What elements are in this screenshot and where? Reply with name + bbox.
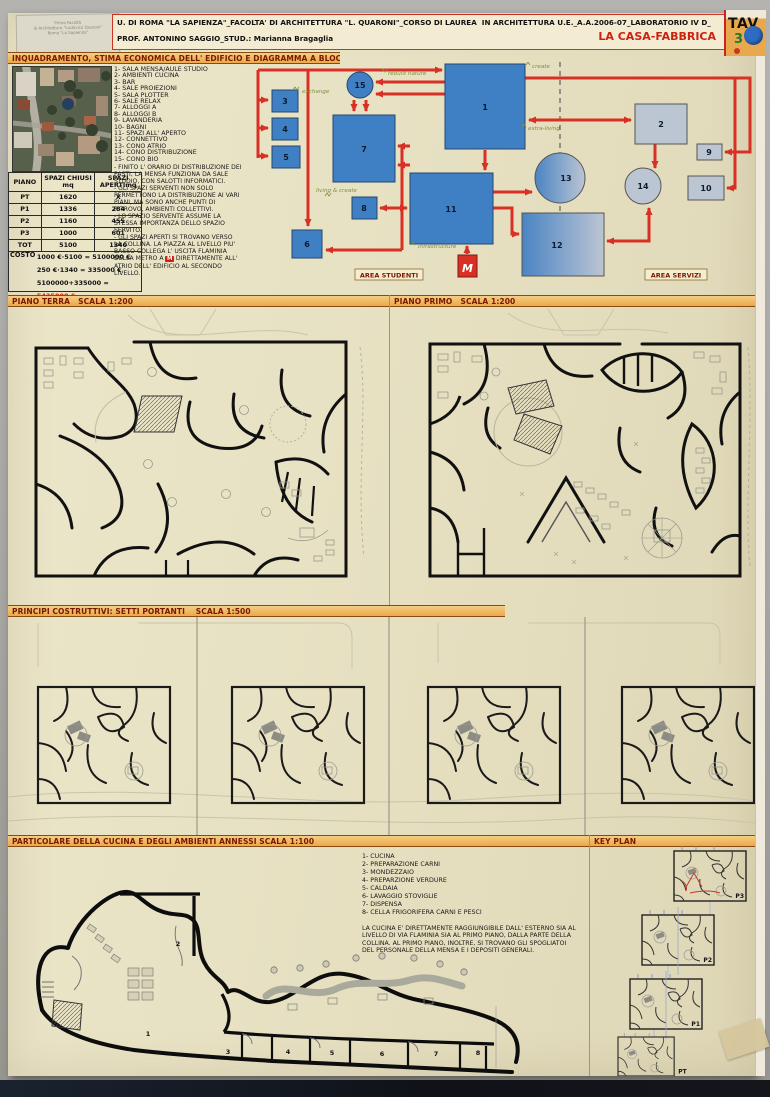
key-plan-P3: P3	[674, 846, 746, 901]
svg-text:4: 4	[282, 125, 288, 134]
primo-plants	[520, 442, 638, 564]
section3-title: PRINCIPI COSTRUTTIVI: SETTI PORTANTI SCA…	[12, 607, 251, 616]
keyplan-label-pt: PT	[678, 1070, 686, 1076]
legend-item: 15- CONO BIO	[114, 157, 244, 163]
section3-header-bar: PRINCIPI COSTRUTTIVI: SETTI PORTANTI SCA…	[8, 605, 505, 617]
area-studenti-label: AREA STUDENTI	[360, 272, 418, 280]
terra-stairs	[134, 396, 182, 432]
title-strip: U. DI ROMA "LA SAPIENZA"_FACOLTA' DI ARC…	[112, 14, 724, 50]
piano-terra-header-bar: PIANO TERRA SCALA 1:200	[8, 295, 389, 307]
serving-counter	[266, 978, 462, 996]
piano-primo-plan	[424, 332, 746, 588]
svg-text:15: 15	[354, 81, 366, 90]
kitchen-stairs	[52, 1000, 82, 1030]
kitchen-steps	[42, 982, 54, 997]
setti-plan-2	[232, 687, 364, 803]
svg-text:5: 5	[330, 1049, 335, 1057]
svg-text:1: 1	[146, 1030, 151, 1038]
key-plan-P1: P1	[630, 971, 702, 1039]
keyplan-label-p2: P2	[703, 957, 712, 964]
kitchen-legend-item: 1- CUCINA	[362, 853, 562, 861]
table-header: SPAZI CHIUSI mq	[41, 173, 95, 192]
piano-primo-header-bar: PIANO PRIMO SCALA 1:200	[390, 295, 755, 307]
setti-plan-1	[38, 687, 170, 803]
svg-text:7: 7	[434, 1050, 439, 1058]
costo-line: 250 €·1340 = 335000 €	[37, 264, 141, 277]
label-infrastructure: infrastructure	[418, 244, 457, 250]
tav-blue-dot	[744, 26, 763, 45]
svg-text:6: 6	[380, 1050, 385, 1058]
diagram-node-12	[522, 213, 604, 276]
area-servizi-label: AREA SERVIZI	[651, 272, 701, 280]
professor-student-line: PROF. ANTONINO SAGGIO_STUD.: Marianna Br…	[117, 34, 333, 43]
university-header: U. DI ROMA "LA SAPIENZA"_FACOLTA' DI ARC…	[117, 18, 720, 27]
photo-dark-dome	[62, 98, 74, 110]
table-row: PT1620X	[9, 192, 142, 204]
primo-ramp-2	[514, 414, 562, 454]
kitchen-tables	[87, 924, 153, 1000]
svg-text:14: 14	[637, 182, 649, 191]
tav-number: 3	[734, 32, 743, 47]
svg-text:4: 4	[286, 1048, 291, 1056]
keyplan-label-p1: P1	[691, 1021, 700, 1028]
dark-table-strip	[0, 1080, 770, 1097]
svg-text:8: 8	[361, 204, 367, 213]
costo-line: 1000 €·5100 = 5100000 €	[37, 251, 141, 264]
metro-node: M	[458, 255, 477, 277]
p3-red-highlight	[682, 873, 720, 893]
svg-text:2: 2	[176, 940, 181, 948]
photographed-presentation-board: Prima Facoltà di Architettura "Ludovico …	[0, 0, 770, 1097]
setti-plan-3	[428, 687, 560, 803]
label-rebuilt-nature: rebuilt nature	[388, 71, 427, 77]
tav-logo: TAV 3	[724, 10, 766, 56]
kitchen-legend-item: 3- MONDEZZAIO	[362, 869, 562, 877]
svg-text:3: 3	[226, 1048, 231, 1056]
kitchen-legend-item: 2- PREPARAZIONE CARNI	[362, 861, 562, 869]
piano-primo-title: PIANO PRIMO SCALA 1:200	[394, 297, 515, 306]
svg-text:M: M	[462, 262, 473, 275]
svg-text:2: 2	[658, 120, 664, 129]
svg-text:1: 1	[482, 103, 488, 112]
terra-trace	[95, 392, 126, 442]
svg-text:5: 5	[283, 153, 289, 162]
project-title: LA CASA-FABBRICA	[598, 30, 716, 43]
primo-ramp-1	[508, 380, 554, 414]
svg-text:8: 8	[476, 1049, 481, 1057]
svg-text:3: 3	[282, 97, 288, 106]
block-diagram: 1 2 3 4 5 6 7 8 9 10 11 12 13 14 15 M ex…	[245, 62, 765, 292]
setti-portanti-panels	[8, 617, 755, 835]
kitchen-inner-walls	[120, 894, 494, 1044]
tav-red-dot	[734, 48, 740, 54]
key-plan-PT: PT	[618, 1033, 687, 1076]
key-plan-P2: P2	[642, 907, 714, 975]
label-extra-living: extra-living	[528, 126, 560, 132]
section4-divider	[589, 835, 590, 1076]
metro-inline-icon: M	[165, 256, 173, 262]
table-row: P11336284	[9, 204, 142, 216]
keyplan-label-p3: P3	[735, 893, 744, 900]
legend-list: 1- SALA MENSA/AULE STUDIO 2- AMBIENTI CU…	[114, 67, 244, 163]
kitchen-plan: 1 2 3 4 5 6 7 8	[26, 884, 566, 1076]
setti-plan-4	[622, 687, 754, 803]
section4-title: PARTICOLARE DELLA CUCINA E DEGLI AMBIENT…	[12, 837, 314, 846]
costo-block: COSTO 1000 €·5100 = 5100000 € 250 €·1340…	[8, 249, 142, 292]
primo-walls	[430, 344, 740, 576]
spaces-table: PIANO SPAZI CHIUSI mq SPAZI APERTImq PT1…	[8, 172, 142, 252]
table-header: PIANO	[9, 173, 42, 192]
svg-text:10: 10	[700, 184, 712, 193]
table-header: SPAZI APERTImq	[95, 173, 142, 192]
label-create: create	[532, 64, 550, 70]
svg-text:9: 9	[706, 148, 712, 157]
svg-text:6: 6	[304, 240, 310, 249]
svg-text:11: 11	[445, 205, 457, 214]
diagram-nodes	[272, 64, 724, 276]
svg-text:13: 13	[560, 174, 571, 183]
svg-text:12: 12	[551, 241, 562, 250]
table-row: P31000601	[9, 228, 142, 240]
corner-sticker: Prima Facoltà di Architettura "Ludovico …	[16, 13, 121, 55]
table-row: P21160455	[9, 216, 142, 228]
counter-stools	[271, 953, 467, 975]
svg-text:7: 7	[361, 145, 367, 154]
costo-label: COSTO	[9, 249, 37, 291]
section4-header-bar: PARTICOLARE DELLA CUCINA E DEGLI AMBIENT…	[8, 835, 589, 847]
aerial-photo	[12, 66, 112, 172]
piano-terra-title: PIANO TERRA SCALA 1:200	[12, 297, 133, 306]
piano-terra-plan	[30, 332, 352, 588]
label-exchange: exchange	[302, 89, 330, 95]
label-living-create: living & create	[316, 188, 357, 194]
terra-fan-walls	[166, 472, 314, 576]
